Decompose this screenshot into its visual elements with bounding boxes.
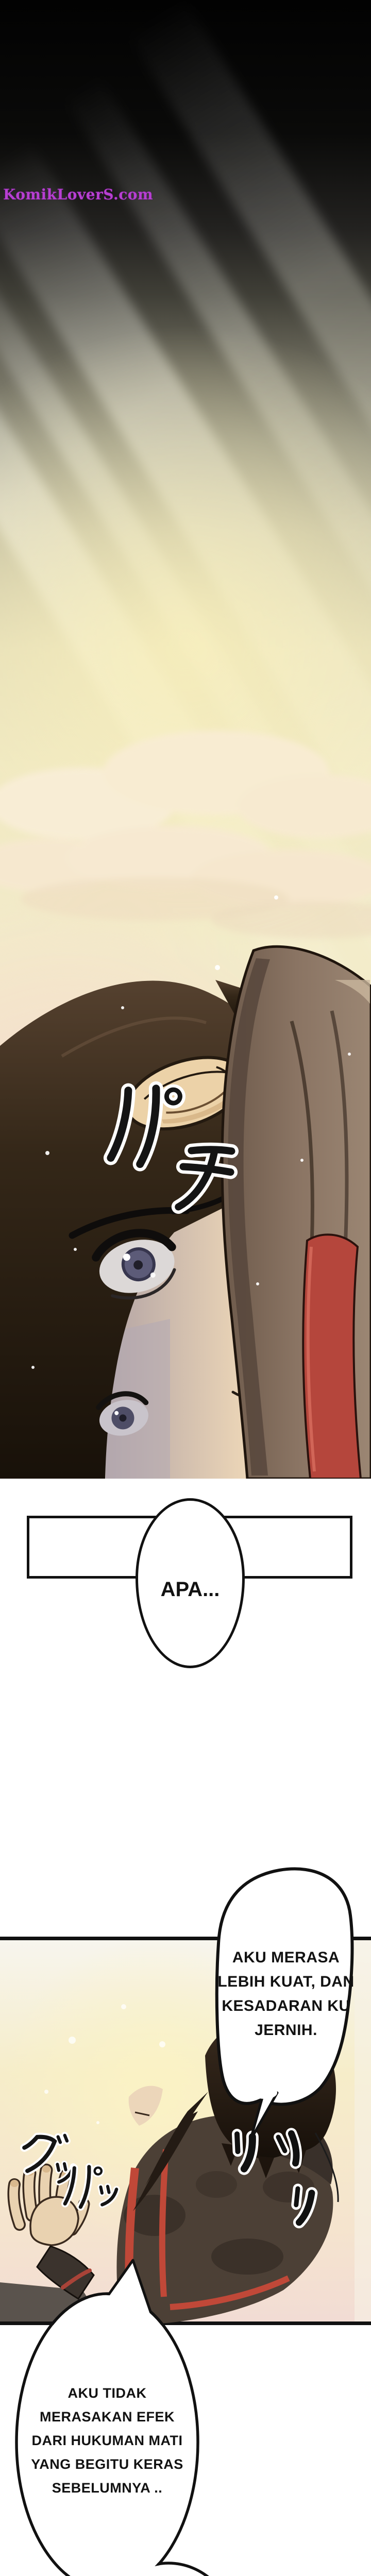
speech-bubble-feel-text: AKU MERASA LEBIH KUAT, DAN KESADARAN KU …: [222, 1945, 350, 2042]
speech-bubble-numb-text: AKU TIDAK MERASAKAN EFEK DARI HUKUMAN MA…: [30, 2381, 184, 2500]
dialog-line: YANG BEGITU KERAS: [31, 2452, 183, 2476]
dialog-line: JERNIH.: [255, 2018, 317, 2042]
dialog-line: AKU TIDAK: [68, 2381, 147, 2405]
apa-bubble-text: APA...: [136, 1566, 245, 1613]
dialog-line: LEBIH KUAT, DAN: [217, 1970, 354, 1994]
dialog-line: AKU MERASA: [232, 1945, 340, 1970]
site-watermark: KomikLoverS.com: [3, 181, 137, 207]
dialog-line: DARI HUKUMAN MATI: [32, 2429, 183, 2452]
dialog-line: KESADARAN KU: [222, 1994, 350, 2018]
panel-sunrise-face: [0, 0, 371, 1479]
dialog-line: MERASAKAN EFEK: [40, 2405, 175, 2429]
dialog-line: SEBELUMNYA ..: [52, 2476, 163, 2500]
comic-page: KomikLoverS.com APA...: [0, 0, 371, 2576]
